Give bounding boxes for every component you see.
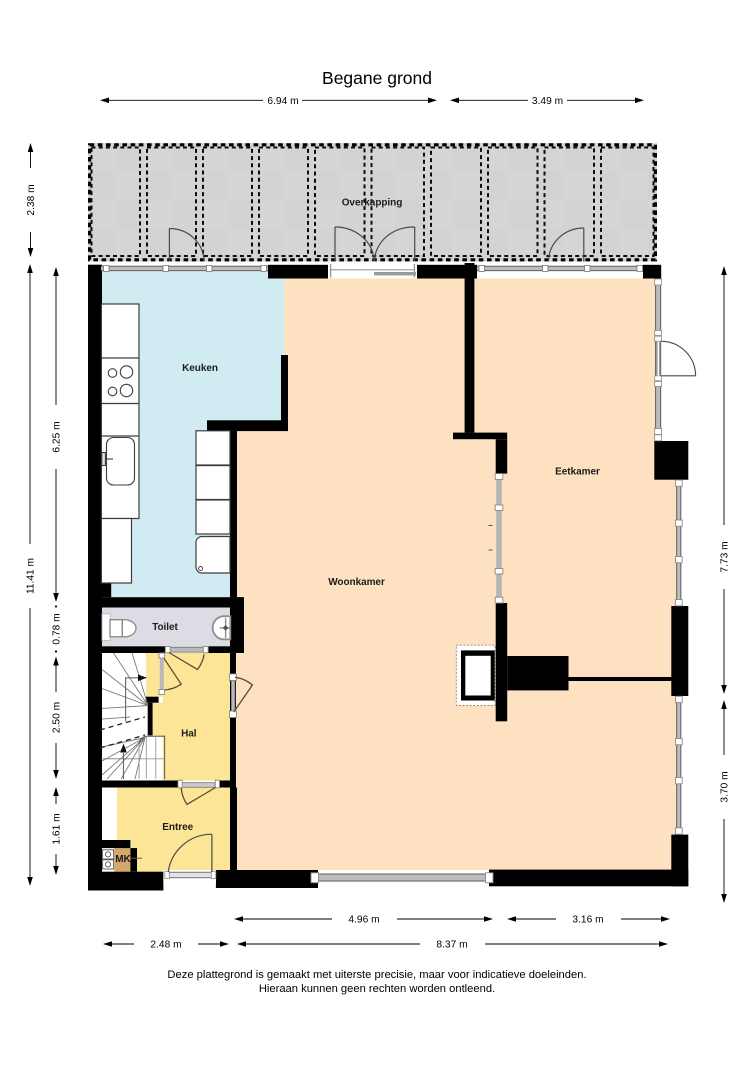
svg-text:Woonkamer: Woonkamer xyxy=(328,577,385,588)
svg-text:1.61 m: 1.61 m xyxy=(52,813,63,844)
svg-text:Eetkamer: Eetkamer xyxy=(555,467,600,478)
svg-text:Overkapping: Overkapping xyxy=(342,198,403,209)
svg-text:3.16 m: 3.16 m xyxy=(572,915,603,926)
svg-text:Entree: Entree xyxy=(162,822,193,833)
svg-text:2.48 m: 2.48 m xyxy=(150,940,181,951)
svg-text:7.73 m: 7.73 m xyxy=(720,541,731,572)
svg-text:11.41 m: 11.41 m xyxy=(26,558,37,594)
svg-text:6.25 m: 6.25 m xyxy=(52,421,63,452)
svg-text:3.70 m: 3.70 m xyxy=(720,771,731,802)
svg-text:Hieraan kunnen geen rechten wo: Hieraan kunnen geen rechten worden ontle… xyxy=(259,983,495,995)
svg-text:Keuken: Keuken xyxy=(182,363,218,374)
svg-text:Hal: Hal xyxy=(181,729,197,740)
svg-text:8.37 m: 8.37 m xyxy=(436,940,467,951)
svg-text:Deze plattegrond is gemaakt me: Deze plattegrond is gemaakt met uiterste… xyxy=(167,969,586,981)
svg-text:2.38 m: 2.38 m xyxy=(26,184,37,215)
svg-text:Begane grond: Begane grond xyxy=(322,68,432,88)
svg-text:0.78 m: 0.78 m xyxy=(52,613,63,644)
svg-text:4.96 m: 4.96 m xyxy=(348,915,379,926)
svg-text:2.50 m: 2.50 m xyxy=(52,702,63,733)
svg-text:Toilet: Toilet xyxy=(152,622,178,633)
svg-text:3.49 m: 3.49 m xyxy=(532,96,563,107)
svg-text:6.94 m: 6.94 m xyxy=(267,96,298,107)
svg-text:MK: MK xyxy=(115,854,131,865)
